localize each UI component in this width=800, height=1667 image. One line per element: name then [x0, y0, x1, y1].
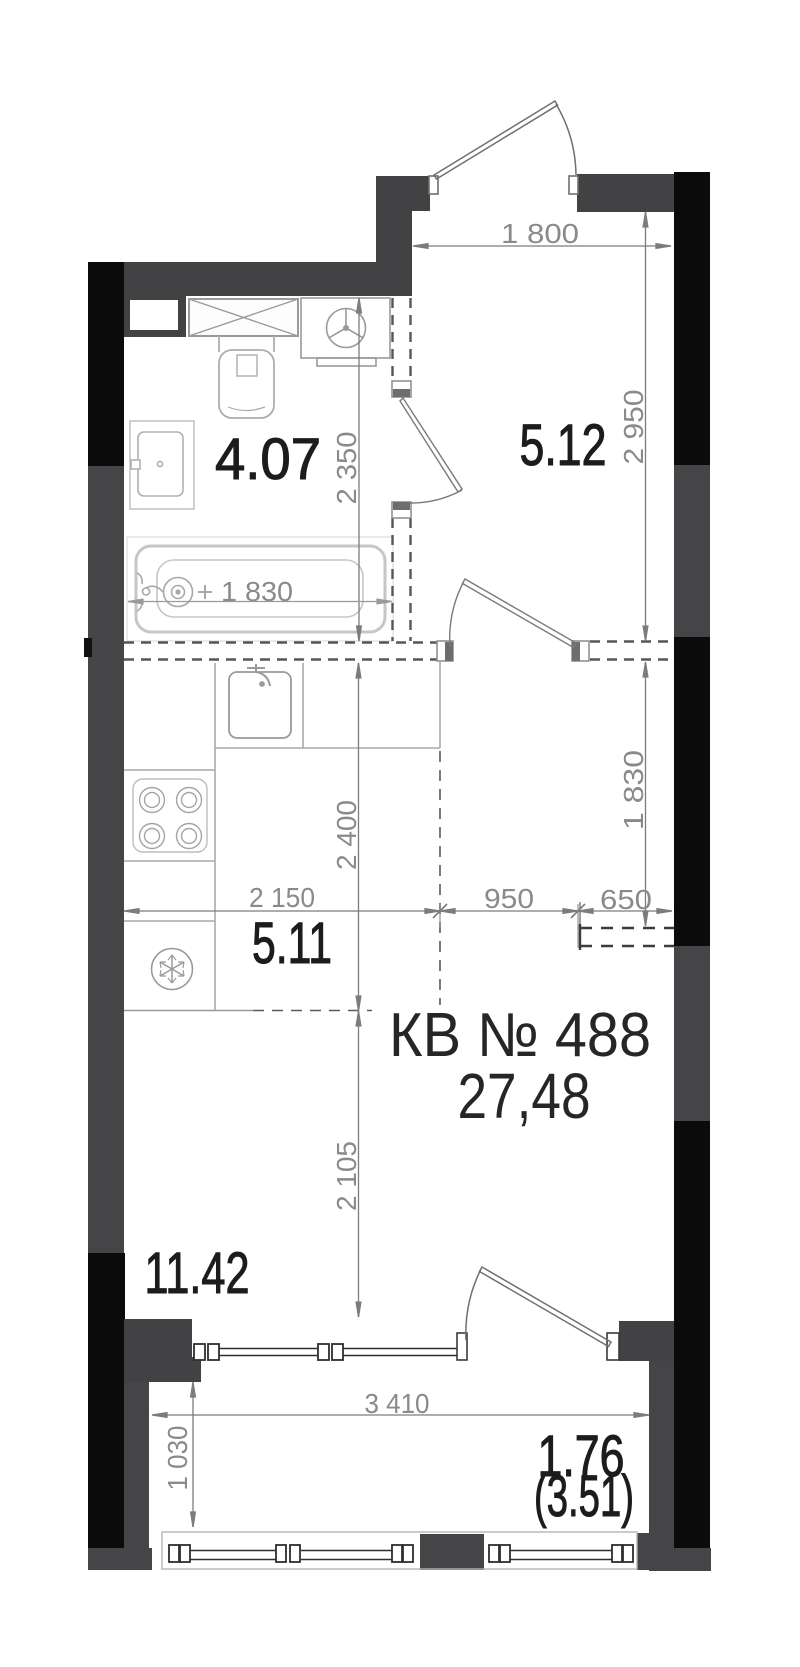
- svg-text:4.07: 4.07: [215, 427, 321, 492]
- svg-text:5.11: 5.11: [252, 911, 332, 976]
- svg-text:1 830: 1 830: [618, 750, 649, 830]
- svg-text:27,48: 27,48: [458, 1060, 591, 1132]
- svg-text:(3.51): (3.51): [534, 1464, 634, 1529]
- svg-text:2 150: 2 150: [249, 882, 315, 913]
- svg-text:3 410: 3 410: [365, 1388, 430, 1419]
- svg-text:1 030: 1 030: [162, 1426, 193, 1491]
- svg-text:2 105: 2 105: [331, 1141, 362, 1211]
- svg-text:1 830: 1 830: [221, 576, 293, 607]
- svg-text:11.42: 11.42: [145, 1241, 250, 1306]
- svg-text:1 800: 1 800: [501, 218, 579, 249]
- svg-text:5.12: 5.12: [520, 413, 607, 478]
- svg-text:950: 950: [484, 883, 534, 914]
- svg-text:2 950: 2 950: [618, 390, 649, 465]
- svg-text:650: 650: [600, 884, 652, 915]
- svg-text:2 350: 2 350: [331, 432, 362, 505]
- svg-text:2 400: 2 400: [331, 800, 362, 870]
